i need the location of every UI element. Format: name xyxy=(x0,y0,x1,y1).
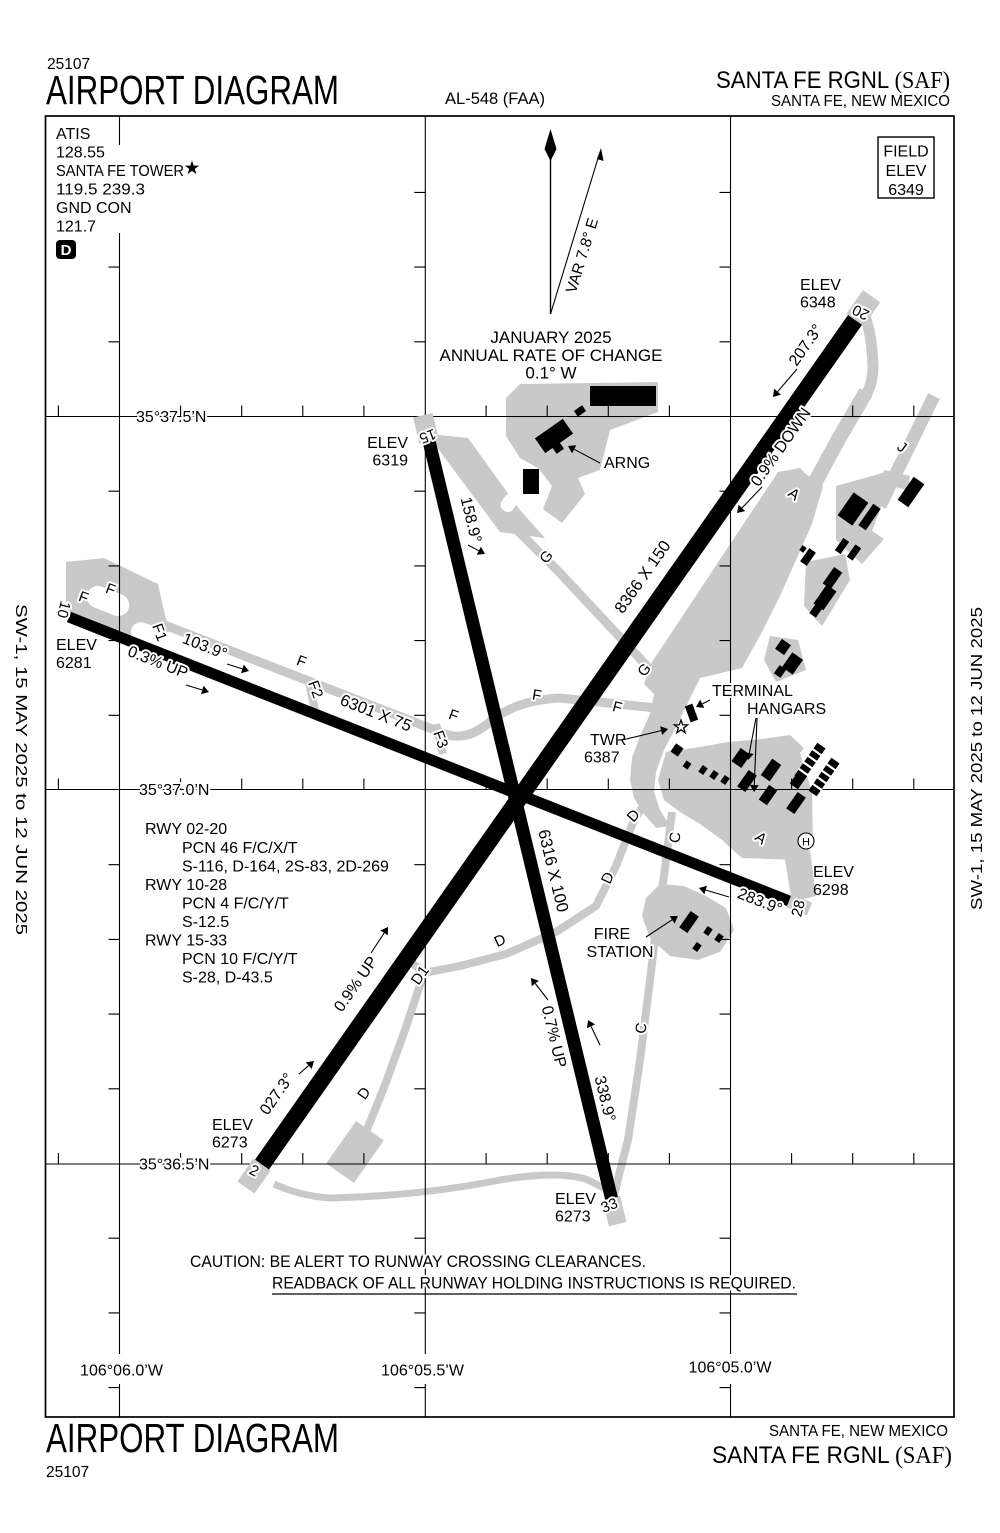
svg-text:35°37.5’N: 35°37.5’N xyxy=(136,409,206,426)
svg-text:AL-548 (FAA): AL-548 (FAA) xyxy=(445,90,545,108)
svg-text:6273: 6273 xyxy=(555,1209,591,1226)
svg-text:HANGARS: HANGARS xyxy=(747,701,826,718)
svg-text:AIRPORT DIAGRAM: AIRPORT DIAGRAM xyxy=(46,67,339,113)
svg-text:6273: 6273 xyxy=(212,1135,248,1152)
svg-text:TWR: TWR xyxy=(590,732,626,749)
svg-text:ELEV: ELEV xyxy=(813,864,854,881)
svg-text:106°06.0’W: 106°06.0’W xyxy=(80,1363,164,1380)
svg-text:H: H xyxy=(802,837,810,849)
svg-text:ELEV: ELEV xyxy=(555,1191,596,1208)
svg-text:FIRE: FIRE xyxy=(594,926,630,943)
svg-text:READBACK OF ALL RUNWAY HOLDING: READBACK OF ALL RUNWAY HOLDING INSTRUCTI… xyxy=(272,1274,796,1293)
svg-text:SANTA FE TOWER: SANTA FE TOWER xyxy=(56,163,184,180)
svg-text:ELEV: ELEV xyxy=(886,163,927,180)
svg-text:ELEV: ELEV xyxy=(56,637,97,654)
svg-text:SANTA FE, NEW MEXICO: SANTA FE, NEW MEXICO xyxy=(769,1423,948,1440)
svg-text:S-28, D-43.5: S-28, D-43.5 xyxy=(182,970,273,987)
svg-text:119.5 239.3: 119.5 239.3 xyxy=(56,182,145,199)
svg-text:6349: 6349 xyxy=(888,182,924,199)
svg-text:JANUARY 2025: JANUARY 2025 xyxy=(490,328,611,347)
svg-text:6298: 6298 xyxy=(813,882,849,899)
svg-text:ANNUAL RATE OF CHANGE: ANNUAL RATE OF CHANGE xyxy=(440,346,663,365)
svg-text:SANTA FE RGNL (SAF): SANTA FE RGNL (SAF) xyxy=(712,1442,952,1469)
svg-text:106°05.5’W: 106°05.5’W xyxy=(381,1363,465,1380)
svg-text:SW-1, 15 MAY 2025 to 12 JUN: SW-1, 15 MAY 2025 to 12 JUN 2025 xyxy=(12,604,29,935)
svg-text:S-12.5: S-12.5 xyxy=(182,914,229,931)
svg-text:ELEV: ELEV xyxy=(800,277,841,294)
svg-text:35°37.0’N: 35°37.0’N xyxy=(139,782,209,799)
svg-text:128.55: 128.55 xyxy=(56,145,105,162)
svg-text:RWY 02-20: RWY 02-20 xyxy=(145,821,227,838)
svg-text:6387: 6387 xyxy=(584,750,620,767)
svg-text:RWY 15-33: RWY 15-33 xyxy=(145,933,227,950)
svg-text:ELEV: ELEV xyxy=(367,435,408,452)
svg-text:ATIS: ATIS xyxy=(56,126,90,143)
svg-text:35°36.5’N: 35°36.5’N xyxy=(139,1157,209,1174)
svg-text:PCN 10 F/C/Y/T: PCN 10 F/C/Y/T xyxy=(182,951,298,968)
svg-text:C: C xyxy=(667,831,685,843)
svg-text:SANTA FE RGNL (SAF): SANTA FE RGNL (SAF) xyxy=(716,67,950,94)
svg-text:6319: 6319 xyxy=(372,453,408,470)
svg-text:TERMINAL: TERMINAL xyxy=(712,683,793,700)
svg-text:6348: 6348 xyxy=(800,295,836,312)
svg-text:121.7: 121.7 xyxy=(56,219,96,236)
svg-text:STATION: STATION xyxy=(587,944,654,961)
svg-text:GND CON: GND CON xyxy=(56,200,132,217)
svg-text:PCN 4 F/C/Y/T: PCN 4 F/C/Y/T xyxy=(182,896,289,913)
svg-text:S-116, D-164, 2S-83, 2D-269: S-116, D-164, 2S-83, 2D-269 xyxy=(182,859,389,876)
svg-text:PCN 46 F/C/X/T: PCN 46 F/C/X/T xyxy=(182,840,298,857)
svg-text:25107: 25107 xyxy=(46,1464,89,1481)
svg-text:SW-1, 15 MAY 2025 to 12 JUN: SW-1, 15 MAY 2025 to 12 JUN 2025 xyxy=(969,607,986,910)
svg-text:RWY 10-28: RWY 10-28 xyxy=(145,877,227,894)
svg-text:CAUTION: BE ALERT TO RUNWAY CR: CAUTION: BE ALERT TO RUNWAY CROSSING CLE… xyxy=(190,1252,646,1271)
svg-text:ARNG: ARNG xyxy=(604,455,650,472)
svg-text:ELEV: ELEV xyxy=(212,1117,253,1134)
svg-text:6281: 6281 xyxy=(56,655,92,672)
svg-text:SANTA FE, NEW MEXICO: SANTA FE, NEW MEXICO xyxy=(771,93,950,110)
svg-text:0.1° W: 0.1° W xyxy=(525,364,576,383)
svg-text:FIELD: FIELD xyxy=(883,144,928,161)
svg-text:AIRPORT DIAGRAM: AIRPORT DIAGRAM xyxy=(46,1415,339,1461)
svg-text:D: D xyxy=(61,242,72,259)
svg-text:106°05.0’W: 106°05.0’W xyxy=(689,1360,773,1377)
